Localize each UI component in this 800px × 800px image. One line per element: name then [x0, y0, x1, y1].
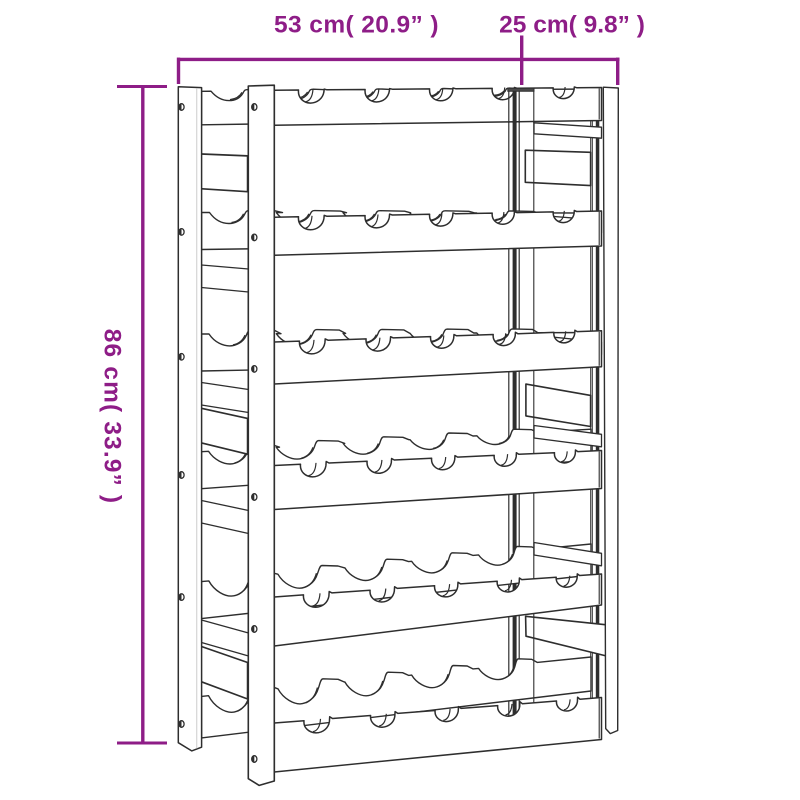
svg-text:25 cm( 9.8” ): 25 cm( 9.8” ): [499, 12, 645, 39]
svg-text:86 cm( 33.9” ): 86 cm( 33.9” ): [99, 329, 126, 504]
svg-text:53 cm( 20.9” ): 53 cm( 20.9” ): [274, 12, 439, 39]
